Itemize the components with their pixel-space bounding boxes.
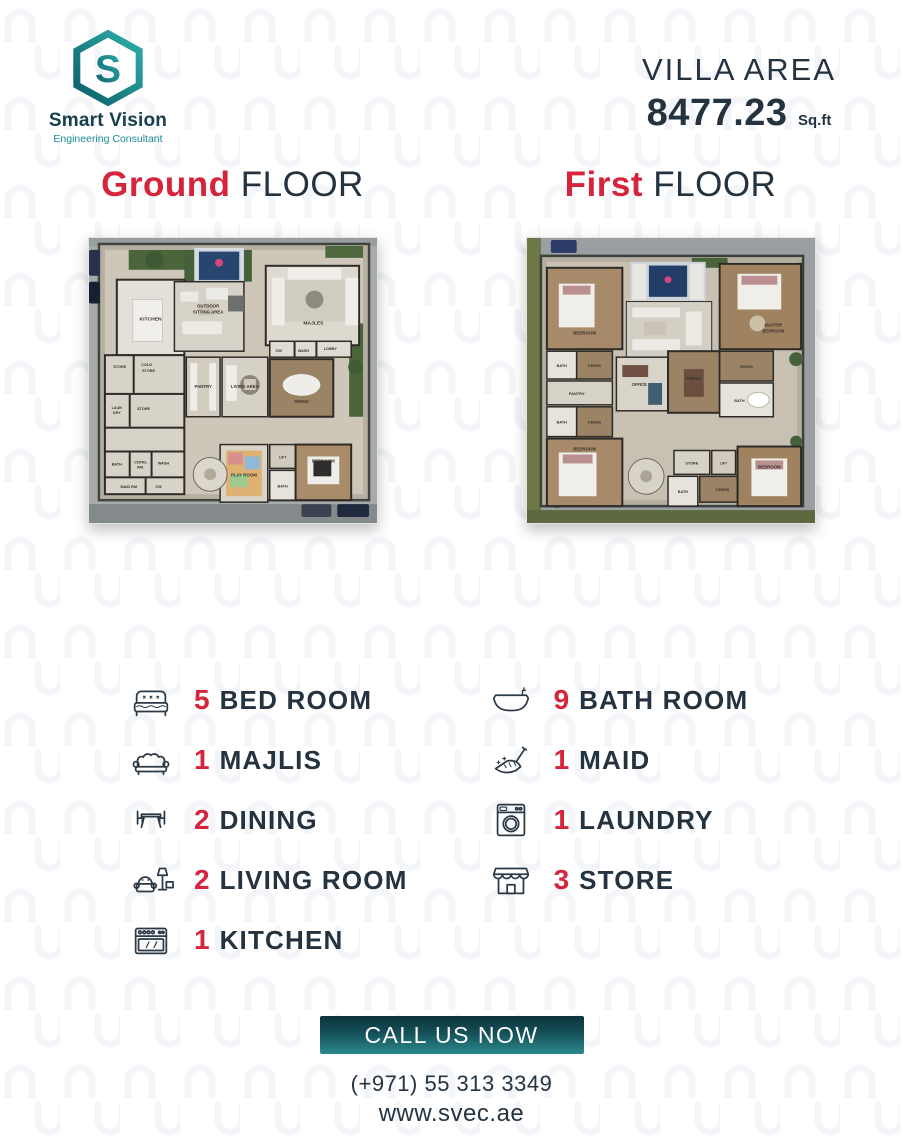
room-label: LIFT: [720, 461, 728, 465]
ground-floor-block: Ground FLOOR KITCHENOUTDOORSITTING AREAM…: [88, 165, 378, 524]
villa-area: VILLA AREA 8477.23 Sq.ft: [619, 52, 859, 135]
room-label: STORE: [142, 369, 155, 373]
table: [305, 291, 323, 309]
room-label: MASTER: [764, 322, 782, 327]
desk: [622, 365, 648, 377]
play-mat: [228, 452, 243, 464]
room-label: BATH: [734, 399, 744, 403]
call-us-now-button[interactable]: CALL US NOW: [320, 1016, 584, 1054]
dining-table: [282, 374, 320, 396]
flyer-page: S Smart Vision Engineering Consultant VI…: [0, 0, 903, 1146]
room-label: OUTDOOR: [197, 304, 220, 309]
room-label: STORE: [137, 407, 150, 411]
car: [550, 240, 576, 253]
feature-label: STORE: [579, 865, 674, 896]
service-strip: [269, 341, 350, 357]
bed-icon: [126, 677, 176, 723]
feature-count: 5: [194, 684, 210, 716]
play-mat: [244, 456, 259, 469]
feature-count: 1: [194, 744, 210, 776]
room-label: BEDROOM: [573, 330, 596, 335]
website-url: www.svec.ae: [0, 1100, 903, 1128]
room-label: OFFICE: [631, 382, 646, 387]
table: [644, 321, 666, 335]
room-label: CW: [155, 485, 162, 489]
grass-strip: [527, 238, 541, 523]
feature-count: 3: [554, 864, 570, 896]
feature-count: 9: [554, 684, 570, 716]
brand-name: Smart Vision: [42, 110, 174, 132]
room-label: DRY: [112, 411, 120, 415]
room-label: COLD: [141, 363, 152, 367]
room-label: PANTRY: [194, 384, 212, 389]
room-label: MAID RM: [120, 485, 137, 489]
wall: [104, 393, 183, 395]
wall: [293, 341, 295, 357]
room-label: MAJLES: [303, 320, 324, 326]
first-floor-block: First FLOOR BEDROOMMASTERBEDROOMBATHDRES…: [526, 165, 816, 524]
feature-row: 2 LIVING ROOM: [126, 850, 408, 910]
feature-row: 1 KITCHEN: [126, 910, 408, 970]
sofa-icon: [126, 737, 176, 783]
sofa: [182, 321, 222, 334]
wall: [104, 427, 183, 429]
sofa: [632, 308, 680, 318]
room-label: WASH: [297, 349, 309, 353]
bbq: [228, 296, 244, 312]
room-label: BEDROOM: [757, 464, 780, 469]
first-floor-title: First FLOOR: [526, 165, 816, 211]
sofa: [632, 339, 680, 350]
room-label: BEDROOM: [573, 447, 596, 452]
wall: [150, 452, 152, 476]
car: [301, 504, 331, 517]
wall: [104, 451, 183, 453]
car: [337, 504, 369, 517]
pillows: [741, 276, 777, 285]
pool-float: [664, 276, 671, 283]
room-label: LOBBY: [323, 347, 337, 351]
service-block: [104, 355, 183, 494]
feature-row: 3 STORE: [486, 850, 749, 910]
laundry-icon: [486, 797, 536, 843]
room-label: WASH: [157, 461, 169, 465]
room-label: DRESS: [588, 421, 601, 425]
spiral-stair-core: [640, 470, 652, 482]
room-label: BEDROOM: [762, 328, 784, 333]
features-right-column: 9 BATH ROOM 1 MAID 1 LAUNDRY 3 STORE: [486, 670, 749, 970]
room-label: BATH: [556, 421, 566, 425]
room-label: LIVING AREA: [230, 384, 259, 389]
room-label: RM.: [137, 465, 144, 469]
room-label: BATH: [111, 462, 121, 466]
room-label: LIFT: [278, 455, 286, 459]
villa-area-label: VILLA AREA: [619, 52, 859, 88]
living-icon: [126, 857, 176, 903]
room-label: BATH: [277, 484, 287, 488]
brand-logo-icon: S: [69, 30, 147, 106]
room-label: CW: [275, 349, 282, 353]
wall: [132, 355, 134, 393]
feature-count: 1: [554, 804, 570, 836]
villa-area-unit: Sq.ft: [798, 112, 831, 129]
sofa: [345, 278, 358, 326]
room-label: SITTING AREA: [192, 309, 223, 314]
room-label: DRESS: [739, 365, 752, 369]
grass-strip: [527, 510, 815, 523]
feature-row: 1 MAJLIS: [126, 730, 408, 790]
ground-floor-title: Ground FLOOR: [88, 165, 378, 211]
floor-plans-section: Ground FLOOR KITCHENOUTDOORSITTING AREAM…: [0, 165, 903, 524]
sofa: [685, 311, 701, 345]
sofa: [271, 278, 284, 326]
sofa: [180, 292, 198, 302]
road: [89, 504, 377, 523]
bathtub: [747, 392, 769, 407]
maid-icon: [486, 737, 536, 783]
feature-row: 2 DINING: [126, 790, 408, 850]
kitchen-icon: [126, 917, 176, 963]
feature-count: 1: [194, 924, 210, 956]
phone-number: (+971) 55 313 3349: [0, 1071, 903, 1097]
room-label: DRESS: [686, 376, 701, 381]
car: [89, 250, 100, 276]
room-label: DRESS: [716, 488, 729, 492]
room-label: PANTRY: [568, 391, 584, 396]
feature-count: 1: [554, 744, 570, 776]
room-label: BATH: [556, 364, 566, 368]
svg-text:S: S: [95, 48, 121, 91]
feature-row: 9 BATH ROOM: [486, 670, 749, 730]
pergola: [632, 264, 646, 300]
feature-label: KITCHEN: [220, 925, 344, 956]
room-label: KITCHEN: [139, 316, 161, 322]
sofa: [206, 288, 228, 300]
room-label: PLAY ROOM: [230, 472, 256, 477]
feature-row: 1 LAUNDRY: [486, 790, 749, 850]
pillows: [562, 286, 590, 295]
rug: [648, 383, 662, 405]
tree: [348, 360, 362, 374]
feature-row: 1 MAID: [486, 730, 749, 790]
spiral-stair-core: [204, 468, 216, 480]
feature-count: 2: [194, 864, 210, 896]
tree: [789, 352, 803, 366]
tree: [145, 251, 163, 269]
bath-icon: [486, 677, 536, 723]
cta-section: CALL US NOW (+971) 55 313 3349 www.svec.…: [0, 1016, 903, 1128]
wall: [104, 476, 183, 478]
store-icon: [486, 857, 536, 903]
wardrobe-island: [683, 369, 703, 397]
garden: [325, 246, 363, 258]
wall: [144, 478, 146, 494]
ground-floor-plan: KITCHENOUTDOORSITTING AREAMAJLESCWWASHLO…: [88, 237, 378, 524]
room-label: STORE: [113, 365, 126, 369]
villa-area-value: 8477.23: [647, 92, 788, 134]
pillows: [562, 454, 592, 463]
features-left-column: 5 BED ROOM 1 MAJLIS 2 DINING 2 LIVING RO…: [126, 670, 408, 970]
room-label: BATH: [677, 490, 687, 494]
first-floor-plan: BEDROOMMASTERBEDROOMBATHDRESSPANTRYBATHD…: [526, 237, 816, 524]
feature-label: MAJLIS: [220, 745, 323, 776]
brand-subtitle: Engineering Consultant: [42, 133, 174, 145]
features-section: 5 BED ROOM 1 MAJLIS 2 DINING 2 LIVING RO…: [126, 670, 748, 970]
dining-icon: [126, 797, 176, 843]
feature-label: DINING: [220, 805, 318, 836]
brand-logo: S Smart Vision Engineering Consultant: [42, 30, 174, 145]
feature-row: 5 BED ROOM: [126, 670, 408, 730]
pool-float: [215, 259, 223, 267]
feature-label: LAUNDRY: [579, 805, 714, 836]
room-label: LAUN: [111, 406, 122, 410]
feature-label: LIVING ROOM: [220, 865, 408, 896]
wall: [128, 395, 130, 427]
feature-label: BED ROOM: [220, 685, 373, 716]
sofa: [287, 268, 341, 280]
wall: [128, 452, 130, 476]
feature-label: MAID: [579, 745, 650, 776]
pergola: [689, 264, 703, 300]
feature-label: BATH ROOM: [579, 685, 748, 716]
room-label: DRESS: [588, 364, 601, 368]
room-label: DINING: [294, 399, 309, 404]
car: [89, 282, 100, 304]
room-label: STORE: [685, 461, 698, 465]
room-label: BEDROOM: [311, 458, 334, 463]
room-label: CNTRL: [134, 460, 147, 464]
wall: [315, 341, 317, 357]
feature-count: 2: [194, 804, 210, 836]
